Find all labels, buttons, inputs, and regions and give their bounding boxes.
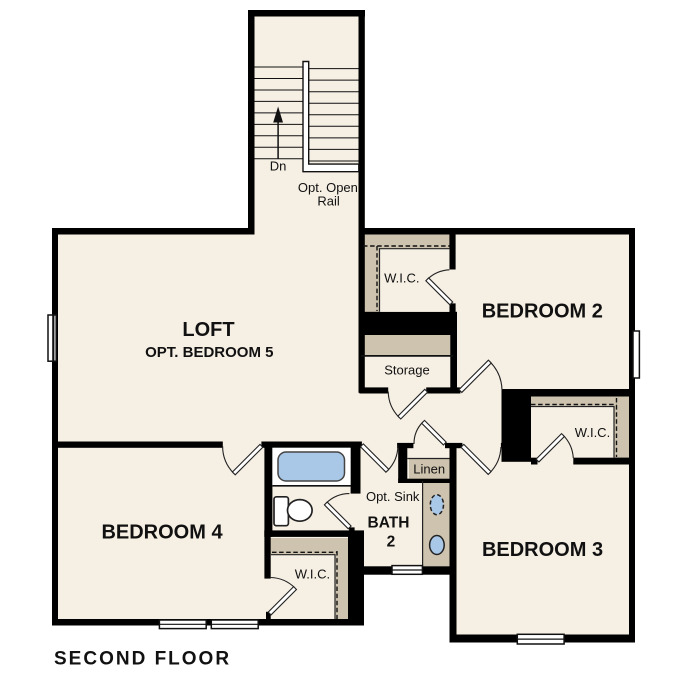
svg-text:LOFT: LOFT bbox=[182, 319, 234, 341]
svg-text:Storage: Storage bbox=[384, 363, 430, 378]
svg-text:BEDROOM 2: BEDROOM 2 bbox=[482, 301, 603, 323]
svg-text:W.I.C.: W.I.C. bbox=[575, 425, 610, 440]
svg-text:SECOND FLOOR: SECOND FLOOR bbox=[54, 649, 231, 670]
svg-text:OPT. BEDROOM 5: OPT. BEDROOM 5 bbox=[145, 344, 273, 361]
svg-text:Opt. Sink: Opt. Sink bbox=[366, 489, 420, 504]
svg-text:BEDROOM 4: BEDROOM 4 bbox=[101, 522, 223, 544]
svg-text:W.I.C.: W.I.C. bbox=[384, 270, 419, 285]
svg-text:Rail: Rail bbox=[317, 194, 340, 209]
svg-text:BATH: BATH bbox=[368, 515, 410, 532]
svg-text:BEDROOM 3: BEDROOM 3 bbox=[482, 539, 603, 561]
svg-text:2: 2 bbox=[387, 534, 396, 551]
svg-text:Dn: Dn bbox=[270, 159, 287, 174]
svg-text:W.I.C.: W.I.C. bbox=[295, 567, 330, 582]
svg-text:Linen: Linen bbox=[413, 462, 445, 477]
